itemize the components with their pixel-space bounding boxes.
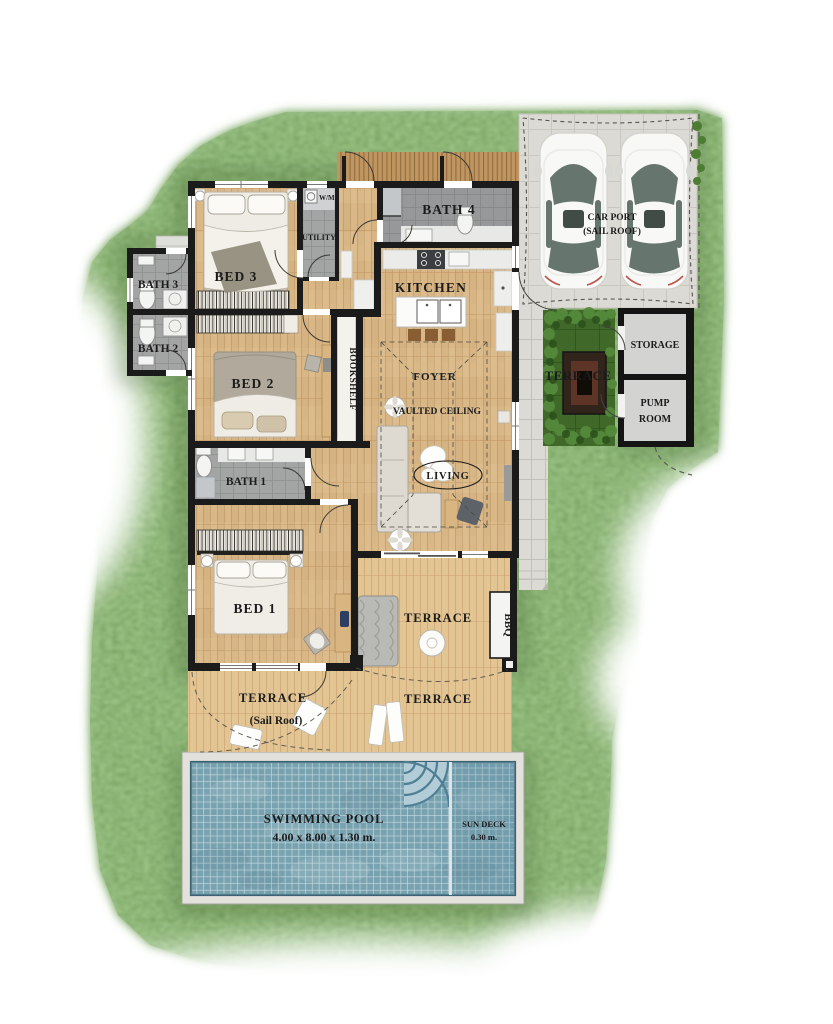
svg-text:BOOKSHELF: BOOKSHELF <box>347 347 357 410</box>
svg-text:CAR PORT: CAR PORT <box>587 213 637 223</box>
svg-text:PUMP: PUMP <box>641 398 670 409</box>
svg-text:UTILITY: UTILITY <box>302 233 336 242</box>
svg-text:TERRACE: TERRACE <box>404 692 472 706</box>
svg-text:BATH 4: BATH 4 <box>422 202 475 217</box>
svg-text:(SAIL ROOF): (SAIL ROOF) <box>583 226 641 237</box>
svg-text:4.00 x 8.00 x 1.30 m.: 4.00 x 8.00 x 1.30 m. <box>273 830 376 844</box>
svg-text:BED 2: BED 2 <box>232 376 275 391</box>
svg-text:VAULTED CEILING: VAULTED CEILING <box>393 407 482 417</box>
svg-text:TERRACE: TERRACE <box>544 368 611 383</box>
svg-text:BED 1: BED 1 <box>234 601 277 616</box>
svg-text:FOYER: FOYER <box>413 371 457 383</box>
svg-text:0.30 m.: 0.30 m. <box>471 832 497 842</box>
svg-text:ROOM: ROOM <box>639 414 672 425</box>
svg-text:TERRACE: TERRACE <box>404 611 472 625</box>
svg-text:KITCHEN: KITCHEN <box>395 280 467 295</box>
svg-text:BATH 1: BATH 1 <box>226 476 267 488</box>
svg-text:SUN DECK: SUN DECK <box>462 819 506 829</box>
svg-text:BATH 3: BATH 3 <box>138 279 179 291</box>
svg-text:BED 3: BED 3 <box>215 269 258 284</box>
svg-text:(Sail Roof): (Sail Roof) <box>250 715 303 727</box>
svg-text:BATH 2: BATH 2 <box>138 343 179 355</box>
svg-text:TERRACE: TERRACE <box>239 691 307 705</box>
svg-text:STORAGE: STORAGE <box>631 340 680 351</box>
svg-text:SWIMMING POOL: SWIMMING POOL <box>264 812 384 826</box>
svg-text:LIVING: LIVING <box>426 471 469 482</box>
svg-text:W/M: W/M <box>319 194 335 202</box>
